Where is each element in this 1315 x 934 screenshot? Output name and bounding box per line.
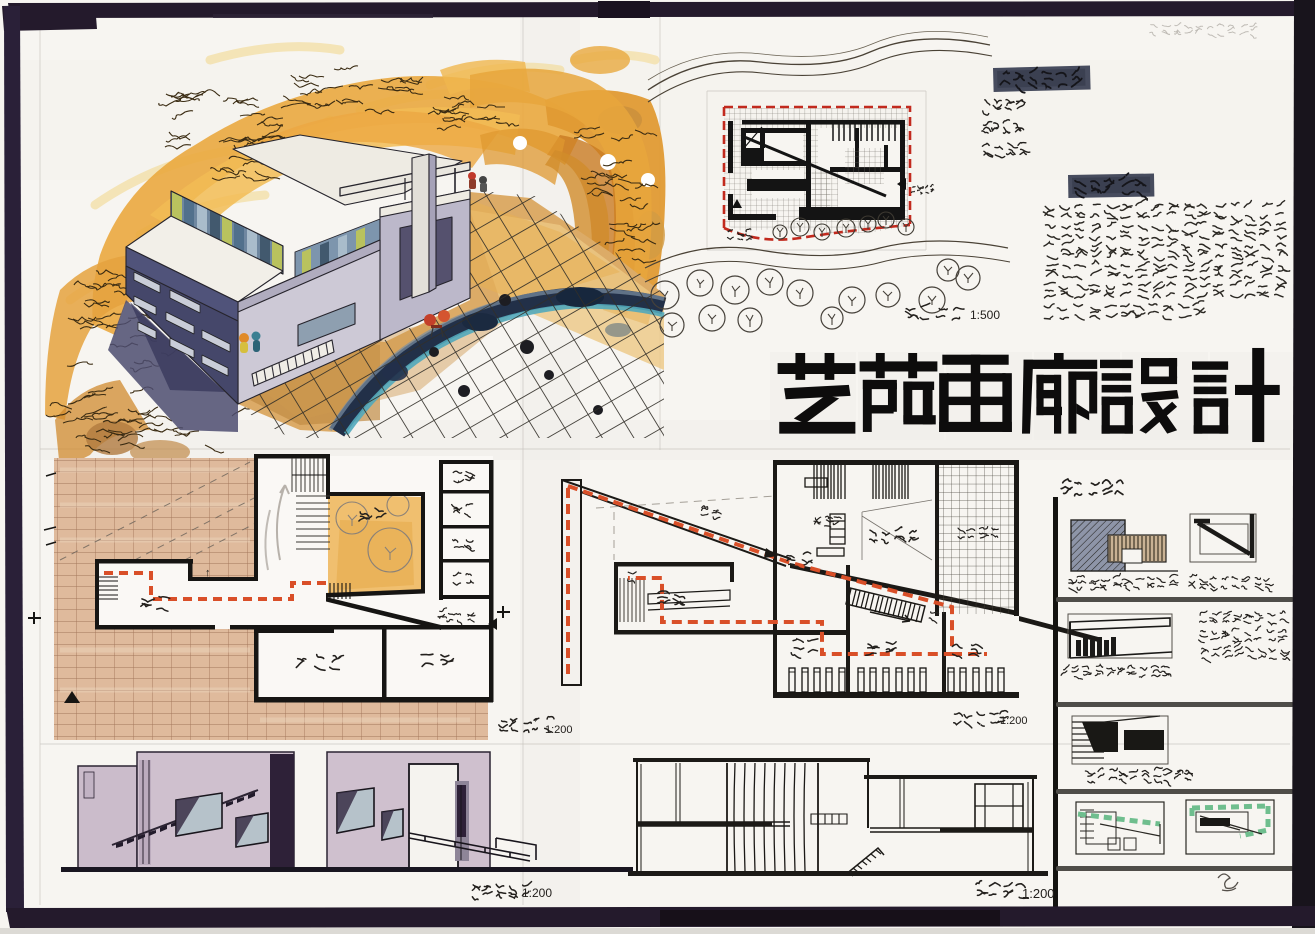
svg-text:1:200: 1:200 (1022, 886, 1055, 901)
svg-text:1:500: 1:500 (970, 308, 1000, 322)
svg-text:1:200: 1:200 (1000, 715, 1028, 727)
svg-text:1:200: 1:200 (545, 724, 573, 736)
svg-text:↑: ↑ (205, 567, 211, 579)
svg-text:1:200: 1:200 (522, 886, 552, 900)
